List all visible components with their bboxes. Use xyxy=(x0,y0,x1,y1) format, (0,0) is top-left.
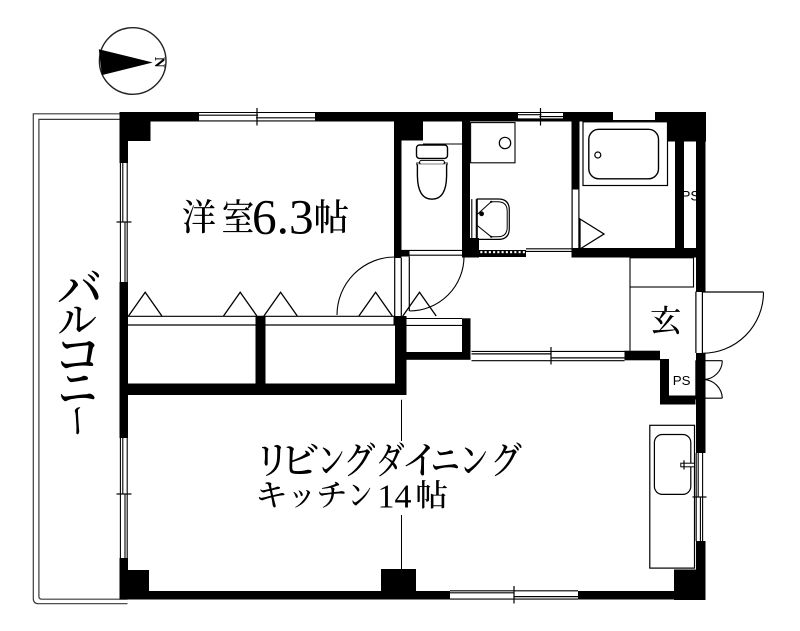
svg-text:N: N xyxy=(151,57,167,68)
svg-text:PS: PS xyxy=(681,189,699,204)
svg-text:14: 14 xyxy=(378,479,412,516)
svg-text:PS: PS xyxy=(673,373,691,388)
svg-text:6.3: 6.3 xyxy=(252,189,314,244)
